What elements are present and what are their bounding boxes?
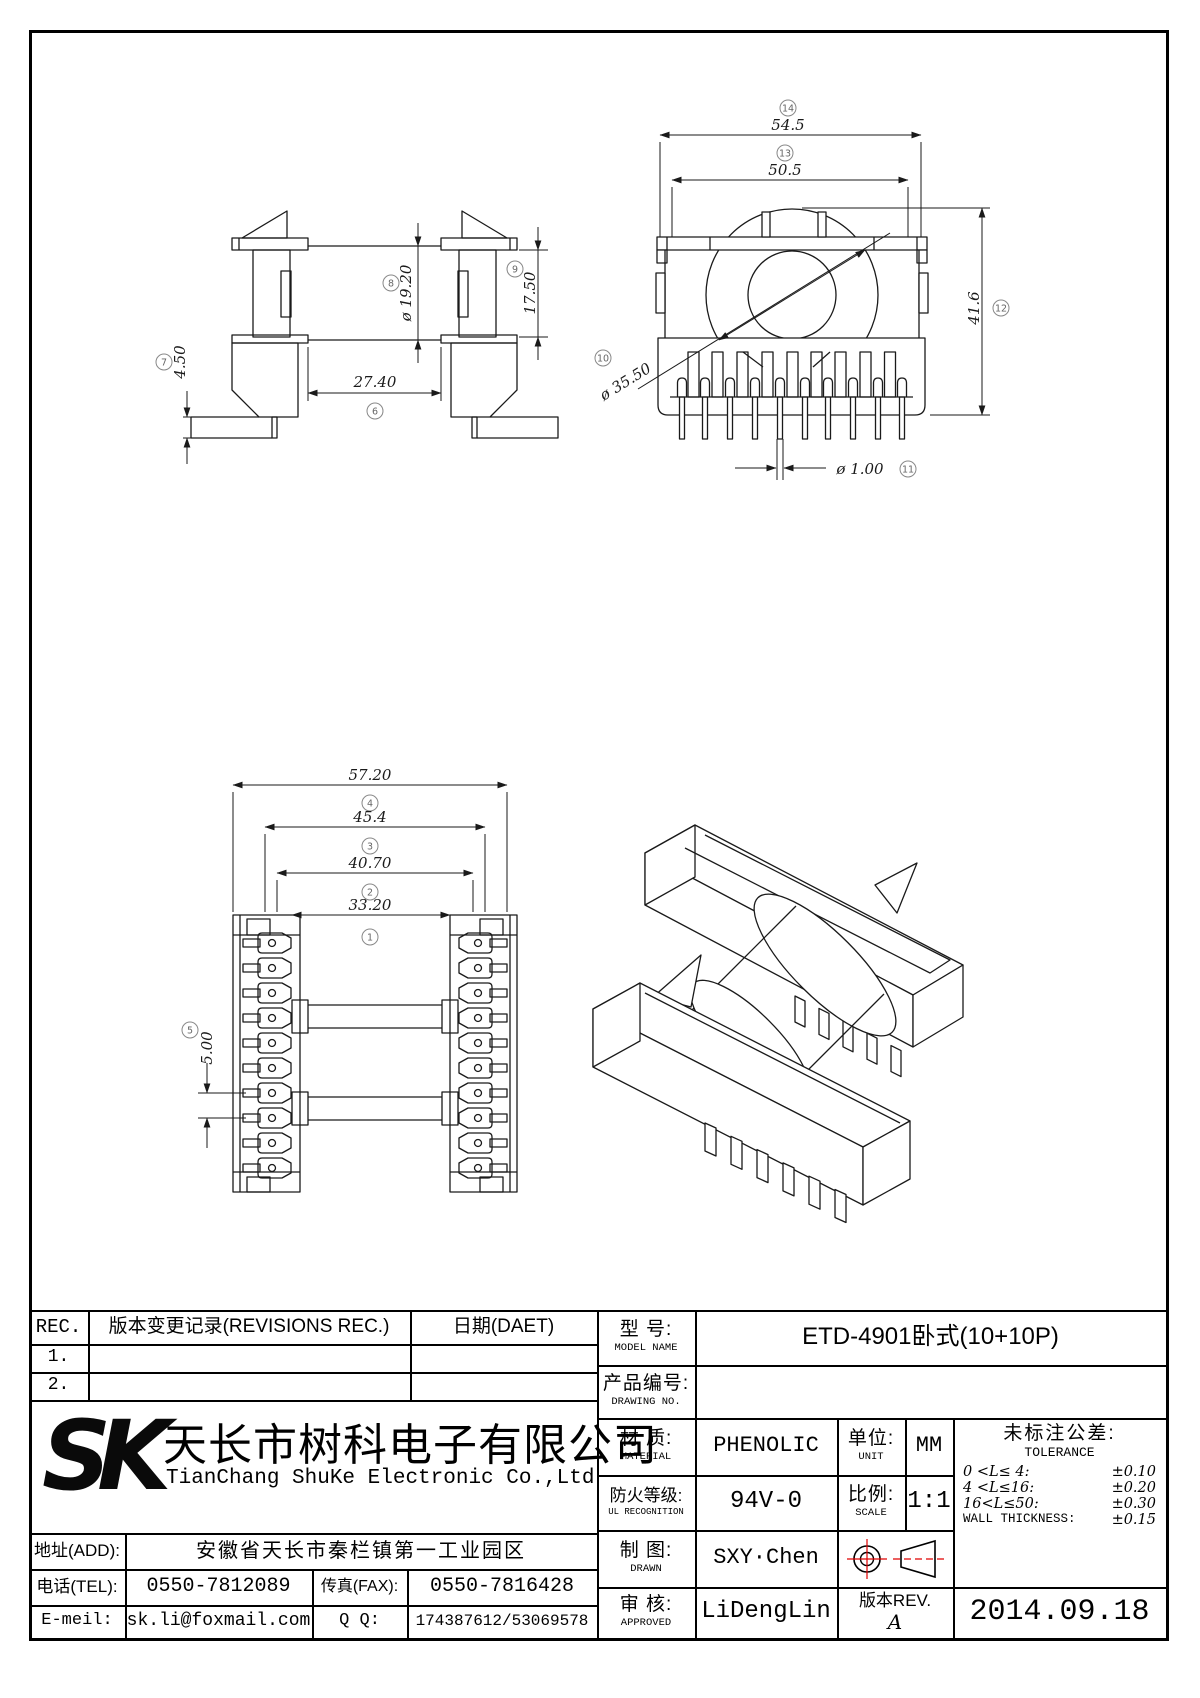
terminal-hole (475, 1090, 482, 1097)
left-pin-row (243, 933, 291, 1178)
drawn-label-en: DRAWN (630, 1564, 662, 1576)
rev-row-1: 1. (29, 1344, 88, 1372)
terminal-hole (475, 940, 482, 947)
terminal-hole (269, 1065, 276, 1072)
iso-pin (705, 1123, 716, 1156)
pin-terminal (258, 933, 291, 953)
table-line (29, 1372, 597, 1374)
iso-pin (795, 996, 805, 1027)
tol-range: WALL THICKNESS: (963, 1512, 1076, 1528)
terminal-hole (475, 990, 482, 997)
pin (803, 397, 808, 439)
pin-terminal (258, 1033, 291, 1053)
terminal-hole (269, 1165, 276, 1172)
pin-terminal (258, 958, 291, 978)
pin (680, 397, 685, 439)
drawing-sheet: ø 19.20 8 17.50 9 4.50 7 27.40 (0, 0, 1200, 1698)
pin-shoulder (726, 378, 735, 397)
fire-value: 94V-0 (695, 1475, 837, 1530)
pin-shoulder (874, 378, 883, 397)
dim-label: 40.70 (348, 854, 392, 872)
rev-row-2: 2. (29, 1372, 88, 1400)
scale-label-en: SCALE (855, 1508, 887, 1520)
terminal-hole (475, 1140, 482, 1147)
tol-range: 16<L≤50: (963, 1496, 1039, 1512)
pin-terminal (258, 1083, 291, 1103)
material-label-en: MATERIAL (621, 1452, 671, 1464)
tolerance-block: 未标注公差: TOLERANCE 0 <L≤ 4: ±0.10 4 <L≤16:… (953, 1418, 1166, 1587)
balloon-num: 12 (995, 304, 1007, 315)
pin-terminal (258, 1058, 291, 1078)
pin-terminal (459, 1033, 492, 1053)
dim-label: 5.00 (198, 1031, 216, 1065)
email-value: sk.li@foxmail.com (125, 1605, 312, 1638)
unit-label-en: UNIT (858, 1452, 883, 1464)
dim-label: 41.6 (965, 291, 983, 326)
material-value: PHENOLIC (695, 1418, 837, 1475)
pin-terminal (258, 1008, 291, 1028)
terminal-hole (475, 1015, 482, 1022)
unit-label-cn: 单位: (848, 1429, 894, 1450)
dim-label: ø 1.00 (835, 460, 884, 478)
drawing-no-label-en: DRAWING NO. (611, 1397, 680, 1409)
fire-label: 防火等级: UL RECOGNITION (597, 1475, 695, 1530)
side-view-svg: ø 19.20 8 17.50 9 4.50 7 27.40 (135, 165, 560, 477)
pin-terminal (459, 958, 492, 978)
iso-pin (809, 1176, 820, 1209)
pin-terminal (459, 1133, 492, 1153)
pin-terminal (459, 1083, 492, 1103)
tolerance-row: 0 <L≤ 4: ±0.10 (963, 1464, 1156, 1480)
balloon-num: 1 (367, 933, 373, 944)
pin-shoulder (751, 378, 760, 397)
terminal-hole (269, 940, 276, 947)
pin-terminal (459, 1158, 492, 1178)
dim-label: 50.5 (768, 161, 801, 179)
tol-value: ±0.15 (1112, 1512, 1156, 1528)
approved-value: LiDengLin (695, 1587, 837, 1638)
drawing-no-label-cn: 产品编号: (603, 1374, 689, 1395)
top-view-svg: 57.20 4 45.4 3 40.70 2 33.20 1 (150, 700, 542, 1205)
tolerance-row: 4 <L≤16: ±0.20 (963, 1480, 1156, 1496)
iso-part (593, 825, 963, 1223)
drawn-label: 制 图: DRAWN (597, 1530, 695, 1587)
terminal-hole (269, 1015, 276, 1022)
date-value: 2014.09.18 (953, 1587, 1166, 1638)
pin-terminal (258, 983, 291, 1003)
balloon-num: 7 (161, 358, 167, 369)
terminal-hole (269, 1090, 276, 1097)
iso-pin (835, 1190, 846, 1223)
iso-pin (783, 1163, 794, 1196)
tol-value: ±0.20 (1112, 1480, 1156, 1496)
table-line (29, 1344, 597, 1346)
addr-value: 安徽省天长市秦栏镇第一工业园区 (125, 1533, 597, 1569)
pin-terminal (258, 1108, 291, 1128)
tol-range: 0 <L≤ 4: (963, 1464, 1029, 1480)
pin (778, 397, 783, 439)
pin-shoulder (824, 378, 833, 397)
material-label: 材 质: MATERIAL (597, 1418, 695, 1475)
unit-label: 单位: UNIT (837, 1418, 905, 1475)
approved-label: 审 核: APPROVED (597, 1587, 695, 1638)
balloon-num: 11 (902, 465, 914, 476)
pin (753, 397, 758, 439)
qq-label: Q Q: (312, 1605, 407, 1638)
dim-label: ø 19.20 (397, 264, 415, 322)
pin-shoulder (898, 378, 907, 397)
rev-col-desc: 版本变更记录(REVISIONS REC.) (88, 1310, 410, 1344)
tol-value: ±0.30 (1112, 1496, 1156, 1512)
terminal-hole (475, 1065, 482, 1072)
terminal-hole (269, 1040, 276, 1047)
pin (703, 397, 708, 439)
company-name-en: TianChang ShuKe Electronic Co.,Ltd (166, 1467, 594, 1490)
scale-label: 比例: SCALE (837, 1475, 905, 1530)
pin-terminal (459, 983, 492, 1003)
model-label-en: MODEL NAME (614, 1343, 677, 1355)
rev-col-date: 日期(DAET) (410, 1310, 597, 1344)
fax-value: 0550-7816428 (407, 1569, 597, 1605)
model-label-cn: 型 号: (620, 1320, 673, 1341)
rev-col-rec: REC. (29, 1310, 88, 1344)
terminal-hole (269, 1115, 276, 1122)
tolerance-row: 16<L≤50: ±0.30 (963, 1496, 1156, 1512)
drawing-no-label: 产品编号: DRAWING NO. (597, 1365, 695, 1418)
model-value: ETD-4901卧式(10+10P) (695, 1310, 1166, 1365)
dim-label: 27.40 (353, 373, 397, 391)
rev-value: A (888, 1611, 902, 1633)
unit-value: MM (905, 1418, 953, 1475)
balloon-num: 13 (779, 149, 791, 160)
terminal-hole (475, 1165, 482, 1172)
tol-range: 4 <L≤16: (963, 1480, 1034, 1496)
tolerance-title-cn: 未标注公差: (1003, 1424, 1115, 1445)
terminal-hole (269, 990, 276, 997)
fire-label-en: UL RECOGNITION (608, 1508, 684, 1518)
approved-label-cn: 审 核: (620, 1595, 673, 1616)
pin-terminal (258, 1133, 291, 1153)
right-pin-row (459, 933, 507, 1178)
pin-terminal (459, 933, 492, 953)
fax-label: 传真(FAX): (312, 1569, 407, 1605)
company-name-cn: 天长市树科电子有限公司 (163, 1409, 658, 1473)
dim-label: 33.20 (349, 896, 392, 914)
front-view-svg: 54.5 14 50.5 13 41.6 12 ø 35.50 10 (530, 95, 1012, 495)
scale-label-cn: 比例: (848, 1485, 894, 1506)
pin-terminal (459, 1008, 492, 1028)
pin-shoulder (678, 378, 687, 397)
iso-pin (891, 1046, 901, 1077)
drawing-no-value (695, 1365, 1166, 1418)
dim-label: 54.5 (771, 116, 804, 134)
terminal-hole (475, 1115, 482, 1122)
pin (851, 397, 856, 439)
isometric-view-svg (545, 755, 977, 1233)
balloon-num: 9 (512, 265, 518, 276)
terminal-hole (475, 965, 482, 972)
balloon-num: 5 (187, 1026, 193, 1037)
first-angle-projection-icon (839, 1532, 951, 1586)
pin-shoulder (849, 378, 858, 397)
top-view-dimensions: 57.20 4 45.4 3 40.70 2 33.20 1 (182, 766, 507, 1148)
pin (876, 397, 881, 439)
rev-label: 版本REV. (859, 1592, 931, 1611)
pin-terminal (459, 1108, 492, 1128)
iso-pin (757, 1150, 768, 1183)
rev-cell: 版本REV. A (837, 1587, 953, 1638)
pin-shoulder (776, 378, 785, 397)
pin-terminal (258, 1158, 291, 1178)
front-view-part (656, 209, 928, 439)
iso-pin (731, 1136, 742, 1169)
tol-value: ±0.10 (1112, 1464, 1156, 1480)
tolerance-row: WALL THICKNESS: ±0.15 (963, 1512, 1156, 1528)
pin (826, 397, 831, 439)
dim-label: 45.4 (352, 808, 386, 826)
tel-label: 电话(TEL): (29, 1569, 125, 1605)
tel-value: 0550-7812089 (125, 1569, 312, 1605)
top-view-part (233, 915, 517, 1192)
addr-label: 地址(ADD): (29, 1533, 125, 1569)
pin (728, 397, 733, 439)
approved-label-en: APPROVED (621, 1618, 671, 1630)
pin (900, 397, 905, 439)
scale-value: 1:1 (905, 1475, 953, 1530)
pin-shoulder (701, 378, 710, 397)
dim-label: 57.20 (349, 766, 392, 784)
balloon-num: 3 (367, 842, 373, 853)
balloon-num: 8 (388, 279, 394, 290)
terminal-hole (475, 1040, 482, 1047)
projection-symbol-cell (837, 1530, 953, 1587)
dim-label: 4.50 (171, 345, 189, 380)
drawn-value: SXY·Chen (695, 1530, 837, 1587)
pin-shoulder (801, 378, 810, 397)
iso-pin (819, 1008, 829, 1039)
balloon-num: 10 (597, 354, 609, 365)
fire-label-cn: 防火等级: (610, 1487, 683, 1506)
qq-value: 174387612/53069578 (407, 1605, 597, 1638)
iso-pin (867, 1033, 877, 1064)
company-logo: SK (42, 1408, 158, 1504)
terminal-hole (269, 965, 276, 972)
balloon-num: 6 (372, 407, 378, 418)
tolerance-title-en: TOLERANCE (1024, 1446, 1094, 1460)
email-label: E-meil: (29, 1605, 125, 1638)
drawn-label-cn: 制 图: (620, 1541, 673, 1562)
model-label: 型 号: MODEL NAME (597, 1310, 695, 1365)
balloon-num: 14 (782, 104, 794, 115)
material-label-cn: 材 质: (620, 1429, 673, 1450)
terminal-hole (269, 1140, 276, 1147)
pin-terminal (459, 1058, 492, 1078)
